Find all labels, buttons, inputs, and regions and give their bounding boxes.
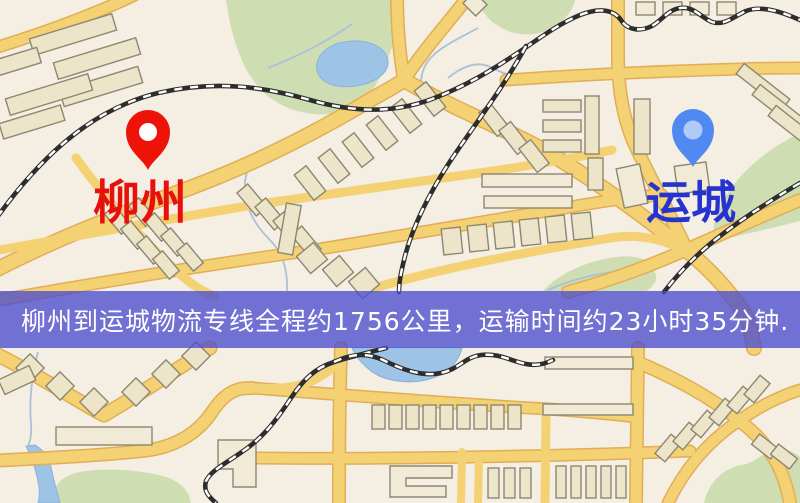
map-view[interactable]: 柳州 运城 柳州到运城物流专线全程约1756公里，运输时间约23小时35分钟. bbox=[0, 0, 800, 503]
map-canvas[interactable]: 柳州 运城 bbox=[0, 0, 800, 503]
route-info-text: 柳州到运城物流专线全程约1756公里，运输时间约23小时35分钟. bbox=[21, 302, 789, 338]
origin-pin-dot bbox=[139, 123, 157, 141]
route-info-banner: 柳州到运城物流专线全程约1756公里，运输时间约23小时35分钟. bbox=[0, 291, 800, 348]
destination-label: 运城 bbox=[646, 176, 736, 229]
destination-pin-dot bbox=[684, 121, 703, 140]
origin-label: 柳州 bbox=[93, 176, 187, 231]
